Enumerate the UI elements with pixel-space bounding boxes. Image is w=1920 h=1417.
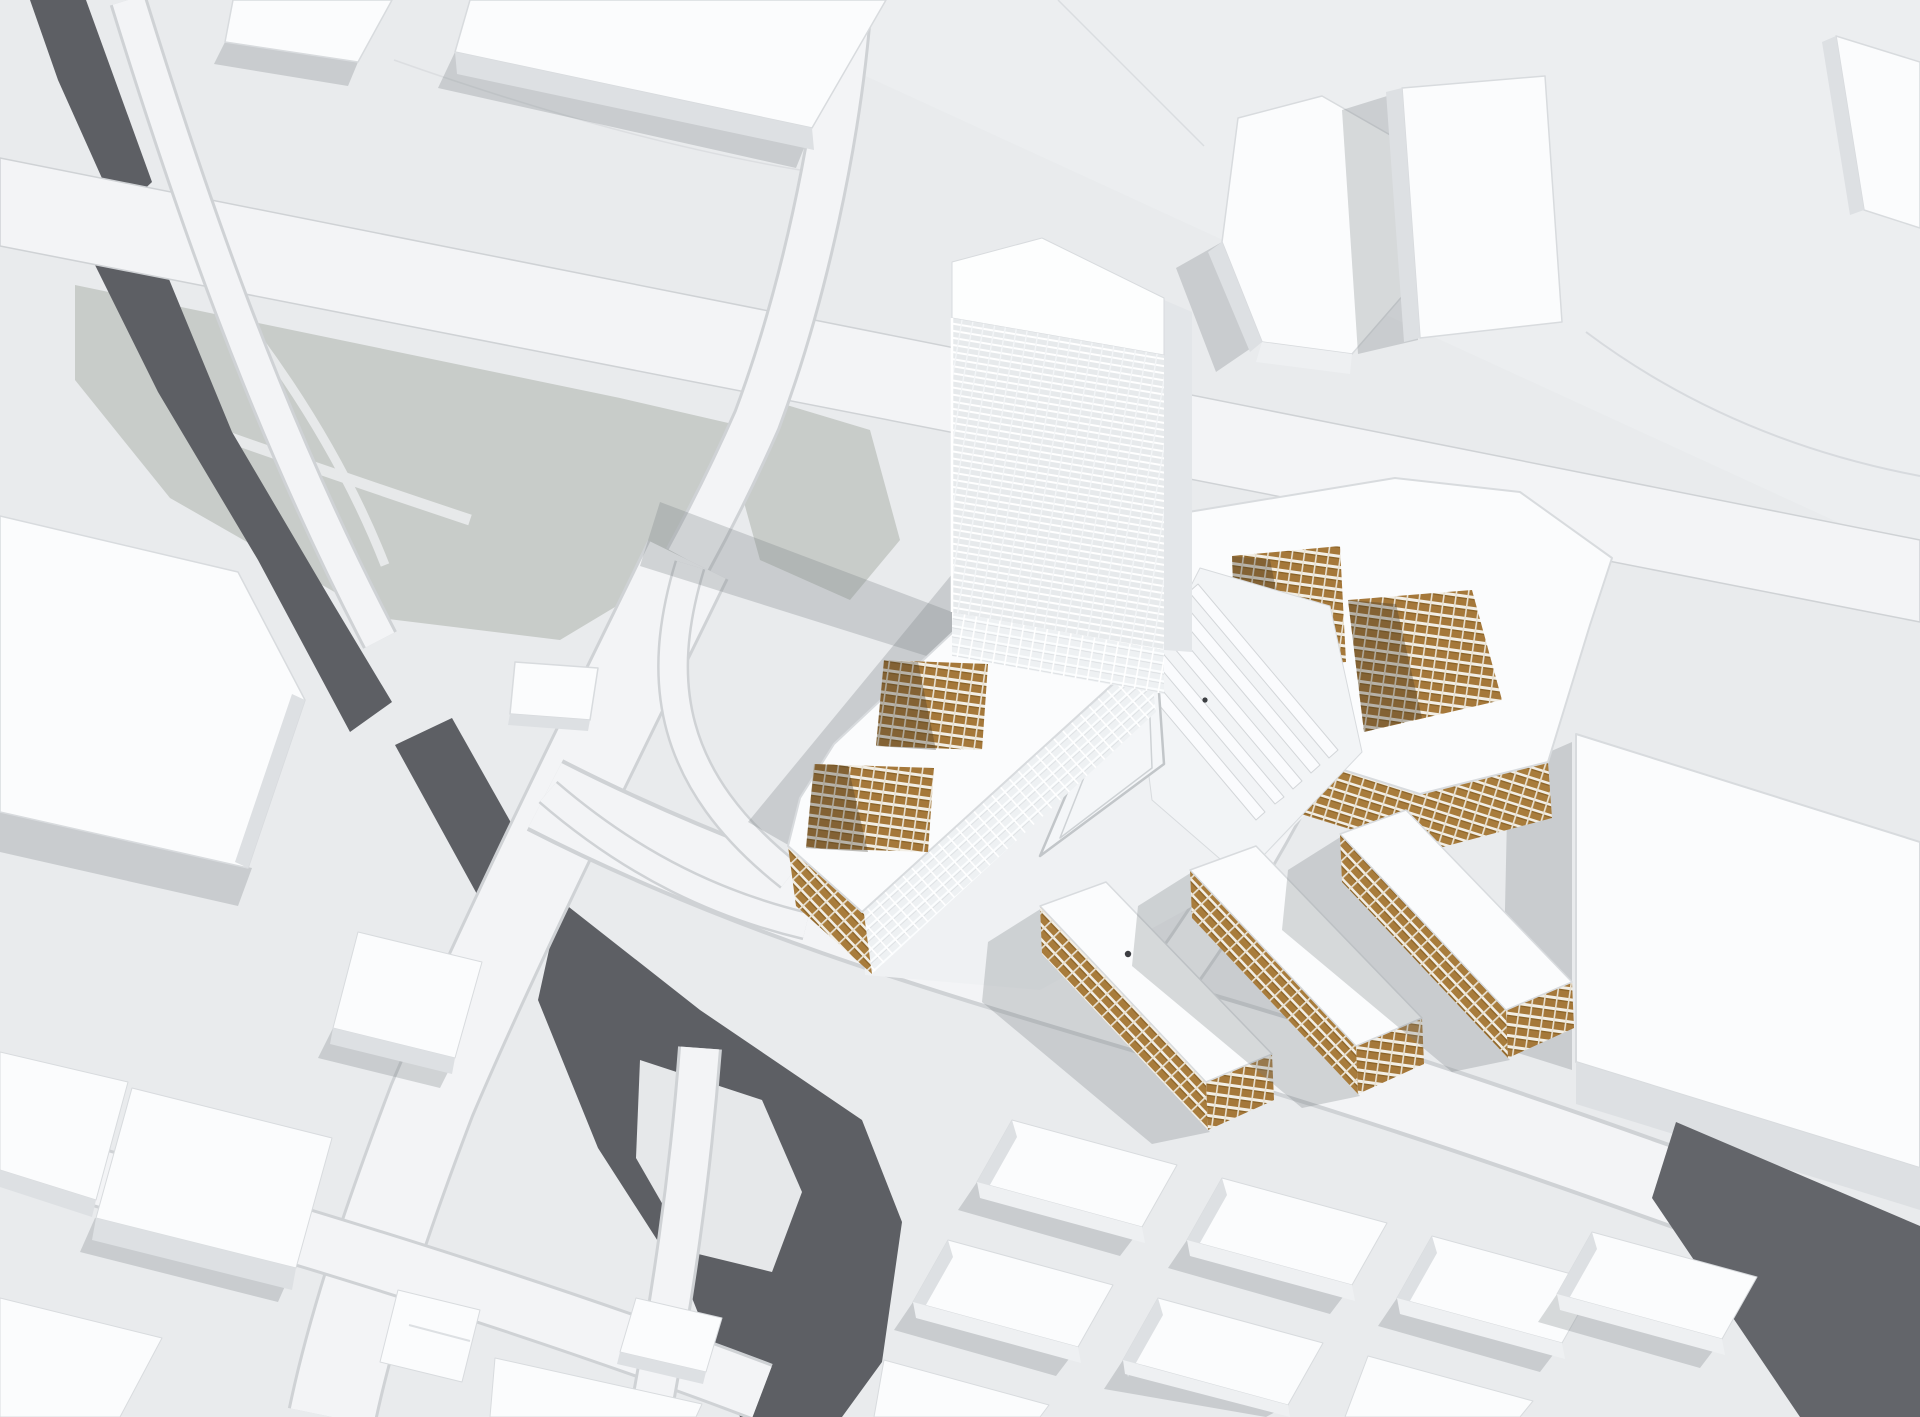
slab-topright-roof [1402,76,1562,338]
pedestrian-figure [1125,951,1131,957]
park-pavilion-roof [510,662,598,720]
tower-facade-grid [952,318,1164,650]
scene-root [0,0,1920,1417]
aerial-massing-render [0,0,1920,1417]
render-viewport [0,0,1920,1417]
pedestrian-figure [1202,697,1207,702]
tower-side-east [1164,300,1192,652]
